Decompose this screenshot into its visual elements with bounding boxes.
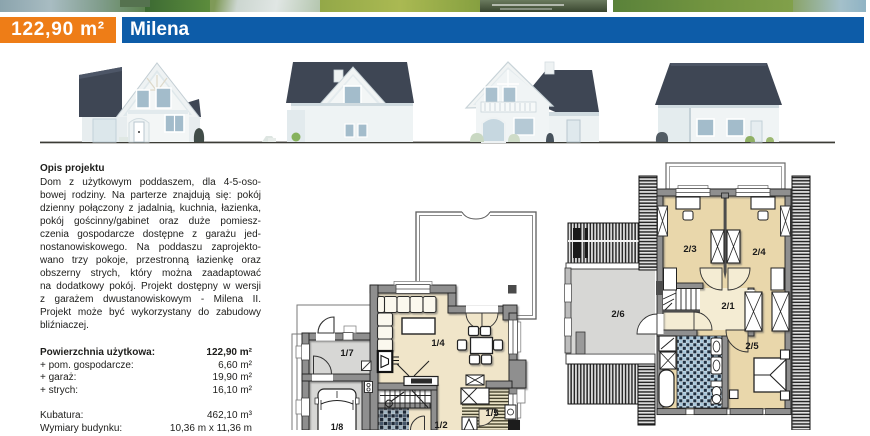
svg-text:2/1: 2/1: [721, 301, 735, 312]
svg-text:2/5: 2/5: [745, 341, 759, 352]
svg-text:2/4: 2/4: [752, 247, 766, 258]
svg-text:2/3: 2/3: [683, 244, 696, 255]
svg-text:1/5: 1/5: [485, 408, 499, 419]
svg-text:2/6: 2/6: [611, 309, 624, 320]
svg-text:1/4: 1/4: [431, 338, 445, 349]
svg-text:1/2: 1/2: [434, 420, 447, 430]
svg-text:1/8: 1/8: [331, 422, 344, 430]
svg-text:1/7: 1/7: [340, 348, 353, 359]
